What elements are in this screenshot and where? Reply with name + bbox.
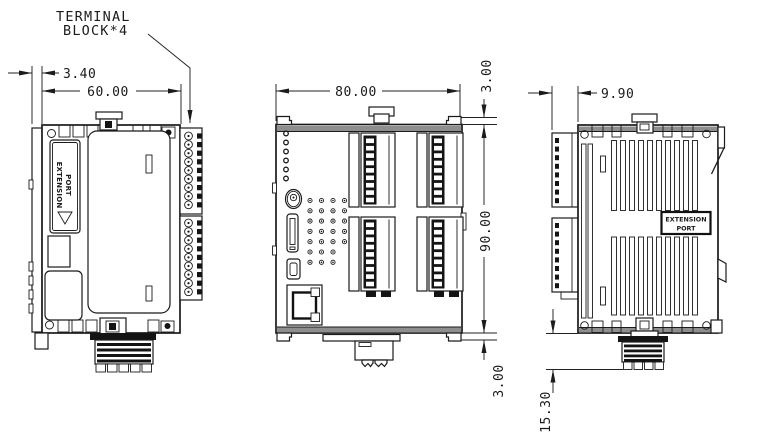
extension-port-label-box: EXTENSION PORT: [662, 212, 711, 234]
bus-connector-bottom: [618, 336, 668, 370]
extension-port-label-line1: EXTENSION: [55, 162, 63, 209]
extension-port-panel: EXTENSION PORT: [50, 140, 80, 233]
extension-port-box-line1: EXTENSION: [665, 216, 706, 224]
extension-port-box-line2: PORT: [676, 225, 696, 233]
ethernet-port: [287, 285, 322, 325]
side-rail-strip: [32, 128, 42, 332]
terminal-block-callout: TERMINAL BLOCK*4: [56, 9, 190, 123]
din-clip-top: [96, 112, 122, 119]
dim-3-40: 3.40: [8, 66, 96, 124]
front-view: 80.00 3.00 90.00 3.00: [273, 59, 508, 397]
rotary-switch: [286, 190, 302, 209]
dim-height-value: 90.00: [479, 210, 494, 252]
mount-tab: [447, 333, 462, 341]
dim-tab-bottom-value: 3.00: [492, 364, 507, 397]
right-side-view: 9.90 15.30: [528, 86, 726, 433]
mount-tab: [277, 117, 292, 125]
side-terminal-blocks: [552, 133, 578, 299]
dim-90-00: 90.00: [479, 125, 494, 333]
dim-9-90: 9.90: [528, 86, 634, 130]
dim-80-00: 80.00: [276, 84, 460, 121]
dim-3-00-bottom: 3.00: [449, 333, 507, 398]
drawing-svg: TERMINAL BLOCK*4 3.40 60.00: [0, 0, 757, 442]
dim-3-00-top: 3.00: [449, 59, 497, 124]
din-clip-top: [632, 114, 657, 122]
sd-card-slot: [287, 214, 298, 252]
dimension-drawing: TERMINAL BLOCK*4 3.40 60.00: [0, 0, 757, 442]
callout-line2: BLOCK*4: [63, 23, 128, 39]
din-rail-clip: [323, 335, 400, 367]
terminal-block-column: [180, 128, 202, 300]
dim-width-value: 60.00: [87, 85, 129, 100]
extension-port-label-line2: PORT: [64, 174, 72, 196]
dim-offset-value: 3.40: [63, 67, 96, 82]
dim-front-width-value: 80.00: [335, 85, 377, 100]
mount-tab: [277, 333, 292, 341]
dim-terminal-depth-value: 9.90: [601, 87, 634, 102]
bus-connector-bottom: [90, 333, 156, 372]
mount-tab: [447, 117, 462, 125]
callout-leader-line: [148, 34, 190, 123]
left-side-view: 3.40 60.00 EXTENSION PORT: [8, 66, 202, 372]
side-cover-panel: [88, 131, 170, 313]
usb-port: [287, 259, 300, 279]
dim-clip-height-value: 15.30: [539, 391, 554, 433]
dim-tab-top-value: 3.00: [480, 59, 495, 92]
